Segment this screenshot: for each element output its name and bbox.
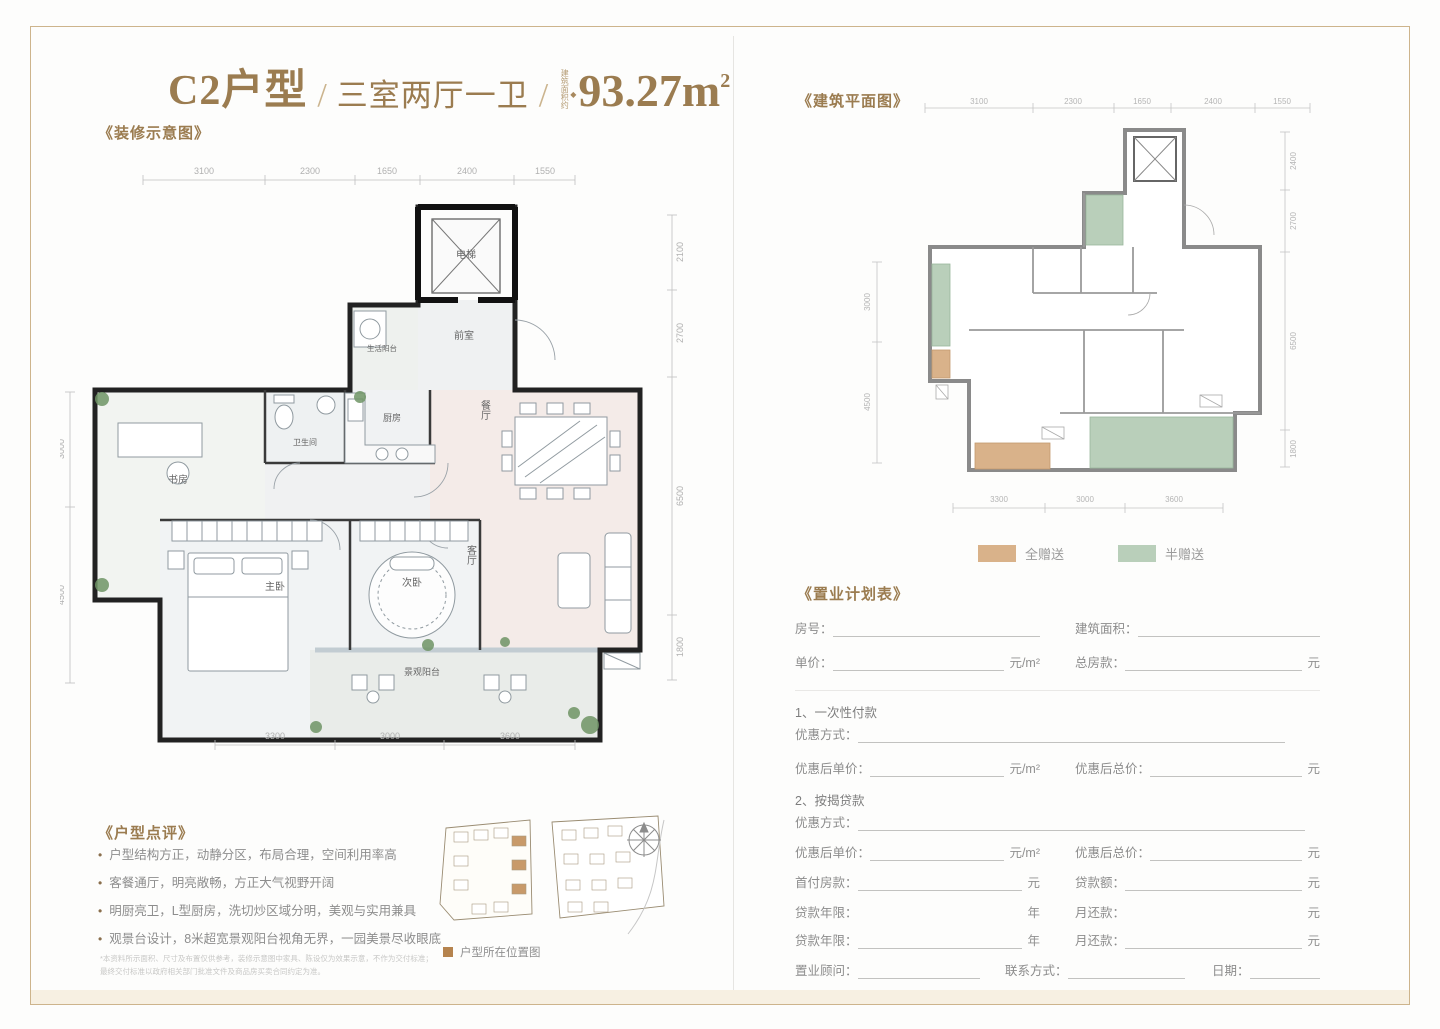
disc-unit-price-label-2: 优惠后单价： [795,842,870,861]
loan-amount-row: 贷款额：元 [1075,872,1320,891]
review-section: •户型结构方正，动静分区，布局合理，空间利用率高 •客餐通厅，明亮敞畅，方正大气… [98,846,458,959]
loan-years-label-2: 贷款年限： [795,930,858,949]
down-payment-unit: 元 [1022,872,1040,891]
adim-top-2: 2300 [1064,97,1082,106]
dim-right-2: 2700 [675,323,685,343]
disc-total-price-label-2: 优惠后总价： [1075,842,1150,861]
monthly-payment-row-2: 月还款：元 [1075,930,1320,949]
build-area-field[interactable] [1138,622,1320,637]
full-gift-swatch [978,545,1016,562]
area-value: 93.27m [578,64,720,117]
discount1-row: 优惠方式： [795,724,1285,743]
room-label-bathroom: 卫生间 [293,437,317,447]
adim-right-3: 6500 [1289,332,1298,350]
room-label-kitchen: 厨房 [383,412,401,423]
dim-top-2: 2300 [300,166,320,176]
half-gift-swatch [1118,545,1156,562]
room-no-field[interactable] [833,622,1040,637]
room-label-study: 书房 [168,473,188,486]
adim-bottom-2: 3000 [1076,495,1094,504]
loan-years-row-1: 贷款年限：年 [795,902,1040,921]
review-text-2: 客餐通厅，明亮敞畅，方正大气视野开阔 [109,874,334,892]
room-no-label: 房号： [795,618,833,637]
dim-bottom-3: 3600 [500,731,520,741]
plan-form-heading: 《置业计划表》 [797,583,909,604]
room-label-service-balcony: 生活阳台 [367,343,397,353]
consultant-label: 置业顾问： [795,960,858,979]
section-one-time-payment: 1、一次性付款 [795,702,877,721]
disc-unit-price-row-2: 优惠后单价：元/m² [795,842,1040,861]
review-text-1: 户型结构方正，动静分区，布局合理，空间利用率高 [109,846,397,864]
dim-top-1: 3100 [194,166,214,176]
monthly-payment-unit-1: 元 [1302,902,1320,921]
adim-right-1: 2400 [1289,152,1298,170]
loan-amount-unit: 元 [1302,872,1320,891]
disc-total-price-unit-1: 元 [1302,758,1320,777]
review-bullet-2: •客餐通厅，明亮敞畅，方正大气视野开阔 [98,874,458,892]
adim-left-2: 4500 [863,393,872,411]
adim-top-1: 3100 [970,97,988,106]
disc-unit-price-row-1: 优惠后单价：元/m² [795,758,1040,777]
section-mortgage: 2、按揭贷款 [795,790,864,809]
room-label-master: 主卧 [265,580,285,593]
bullet-icon: • [98,874,102,892]
monthly-payment-label-1: 月还款： [1075,902,1125,921]
monthly-payment-label-2: 月还款： [1075,930,1125,949]
adim-bottom-3: 3600 [1165,495,1183,504]
full-gift-label: 全赠送 [1025,544,1064,563]
room-label-elevator: 电梯 [456,248,476,261]
contact-row: 联系方式： [1005,960,1185,979]
legend-item-half-gift: 半赠送 [1118,544,1204,563]
discount2-field[interactable] [858,816,1305,831]
dim-left-1: 3000 [60,439,66,459]
review-text-3: 明厨亮卫，L型厨房，洗切炒区域分明，美观与实用兼具 [109,902,416,920]
legend-item-full-gift: 全赠送 [978,544,1064,563]
total-price-row: 总房款：元 [1075,652,1320,671]
deco-plan-label: 《装修示意图》 [98,122,210,143]
bullet-icon: • [98,902,102,920]
location-caption: 户型所在位置图 [443,944,541,960]
down-payment-row: 首付房款：元 [795,872,1040,891]
discount1-label: 优惠方式： [795,724,858,743]
adim-right-2: 2700 [1289,212,1298,230]
disclaimer-line-1: *本资料所示面积、尺寸及布置仅供参考，装修示意图中家具、陈设仅为效果示意，不作为… [100,953,670,966]
discount2-label: 优惠方式： [795,812,858,831]
room-label-living: 客厅 [465,544,477,565]
disclaimer: *本资料所示面积、尺寸及布置仅供参考，装修示意图中家具、陈设仅为效果示意，不作为… [100,953,670,979]
build-area-label: 建筑面积： [1075,618,1138,637]
total-price-label: 总房款： [1075,652,1125,671]
disc-unit-price-field-2[interactable] [870,846,1004,861]
title-separator: / [317,77,326,115]
total-price-unit: 元 [1302,652,1320,671]
disc-total-price-field-2[interactable] [1150,846,1302,861]
loan-years-field-1[interactable] [858,907,1023,921]
disclaimer-line-2: 最终交付标准以政府相关部门批准文件及商品房买卖合同约定为准。 [100,966,670,979]
review-text-4: 观景台设计，8米超宽景观阳台视角无界，一园美景尽收眼底 [109,930,441,948]
form-divider-1 [795,690,1320,691]
room-label-second: 次卧 [402,576,422,589]
unit-layout: 三室两厅一卫 [337,70,529,115]
adim-top-4: 2400 [1204,97,1222,106]
loan-years-row-2: 贷款年限：年 [795,930,1040,949]
loan-years-label-1: 贷款年限： [795,902,858,921]
loan-amount-field[interactable] [1125,876,1302,891]
room-label-view-balcony: 景观阳台 [404,666,440,677]
location-site-map [432,808,677,940]
date-label: 日期： [1212,960,1250,979]
unit-type: C2户型 [168,56,307,117]
room-no-row: 房号： [795,618,1040,637]
disc-unit-price-label-1: 优惠后单价： [795,758,870,777]
discount1-field[interactable] [858,728,1285,743]
bottom-band [31,990,1409,1004]
down-payment-field[interactable] [858,876,1023,891]
bullet-icon: • [98,846,102,864]
consultant-row: 置业顾问： [795,960,980,979]
dim-bottom-2: 3000 [380,731,400,741]
total-price-field[interactable] [1125,656,1302,671]
dim-bottom-1: 3300 [265,731,285,741]
room-label-dining: 餐厅 [479,399,491,420]
disc-total-price-unit-2: 元 [1302,842,1320,861]
arch-elevator [1134,137,1176,181]
dim-top-4: 2400 [457,166,477,176]
unit-price-label: 单价： [795,652,833,671]
area-superscript: 2 [720,70,730,93]
adim-right-4: 1800 [1289,440,1298,458]
brochure-page: C2户型 / 三室两厅一卫 / 建筑面积约 ◆ 93.27m 2 《装修示意图》… [0,0,1440,1029]
dim-right-4: 1800 [675,637,685,657]
contact-label: 联系方式： [1005,960,1068,979]
monthly-payment-unit-2: 元 [1302,930,1320,949]
disc-total-price-label-1: 优惠后总价： [1075,758,1150,777]
room-label-foyer: 前室 [454,329,474,342]
disc-unit-price-field-1[interactable] [870,762,1004,777]
disc-total-price-field-1[interactable] [1150,762,1302,777]
loan-years-field-2[interactable] [858,934,1023,949]
unit-price-row: 单价：元/m² [795,652,1040,671]
diamond-ornament-icon: ◆ [570,90,576,99]
consultant-field[interactable] [858,964,980,979]
unit-price-unit: 元/m² [1004,652,1040,671]
dim-left-2: 4500 [60,585,66,605]
loan-years-unit-1: 年 [1022,902,1040,921]
loan-amount-label: 贷款额： [1075,872,1125,891]
build-area-row: 建筑面积： [1075,618,1320,637]
area-prefix: 建筑面积约 [560,69,568,109]
date-field[interactable] [1250,964,1320,979]
review-heading: 《户型点评》 [98,822,194,843]
dim-top-3: 1650 [377,166,397,176]
adim-bottom-1: 3300 [990,495,1008,504]
monthly-payment-field-1[interactable] [1125,907,1302,921]
adim-top-3: 1650 [1133,97,1151,106]
loan-years-unit-2: 年 [1022,930,1040,949]
dim-top-5: 1550 [535,166,555,176]
adim-left-1: 3000 [863,293,872,311]
review-bullet-1: •户型结构方正，动静分区，布局合理，空间利用率高 [98,846,458,864]
down-payment-label: 首付房款： [795,872,858,891]
decorated-floor-plan: 电梯 前室 生活阳台 厨房 卫生间 书房 餐厅 客厅 主卧 次卧 景观阳台 31… [60,155,740,765]
dim-right-1: 2100 [675,242,685,262]
date-row: 日期： [1212,960,1320,979]
review-bullet-4: •观景台设计，8米超宽景观阳台视角无界，一园美景尽收眼底 [98,930,458,948]
monthly-payment-row-1: 月还款：元 [1075,902,1320,921]
adim-top-5: 1550 [1273,97,1291,106]
dim-right-3: 6500 [675,486,685,506]
review-bullet-3: •明厨亮卫，L型厨房，洗切炒区域分明，美观与实用兼具 [98,902,458,920]
half-gift-label: 半赠送 [1165,544,1204,563]
disc-unit-price-unit-2: 元/m² [1004,842,1040,861]
disc-total-price-row-2: 优惠后总价：元 [1075,842,1320,861]
architectural-plan: 3100 2300 1650 2400 1550 2400 2700 6500 … [850,95,1330,565]
contact-field[interactable] [1068,964,1185,979]
bullet-icon: • [98,930,102,948]
gift-legend: 全赠送 半赠送 [978,544,1258,563]
title-separator-2: / [539,77,548,115]
page-title: C2户型 / 三室两厅一卫 / 建筑面积约 ◆ 93.27m 2 [168,56,730,117]
location-caption-text: 户型所在位置图 [460,944,541,960]
location-swatch-icon [443,947,453,957]
monthly-payment-field-2[interactable] [1125,934,1302,949]
disc-unit-price-unit-1: 元/m² [1004,758,1040,777]
disc-total-price-row-1: 优惠后总价：元 [1075,758,1320,777]
unit-price-field[interactable] [833,656,1005,671]
discount2-row: 优惠方式： [795,812,1305,831]
